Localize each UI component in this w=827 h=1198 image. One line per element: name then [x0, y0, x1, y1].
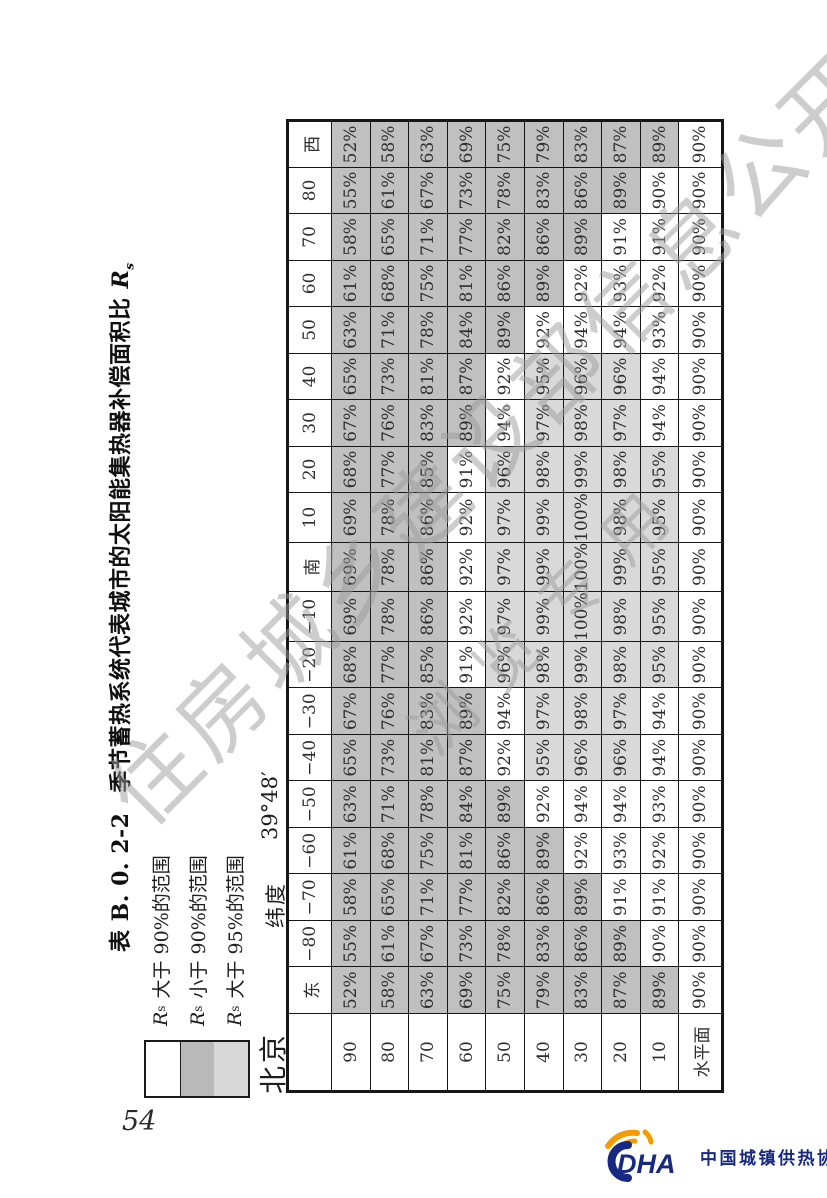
- ratio-cell: 95%: [524, 735, 563, 782]
- ratio-cell: 98%: [602, 446, 641, 493]
- ratio-cell: 63%: [332, 307, 371, 354]
- ratio-cell: 93%: [602, 260, 641, 307]
- ratio-cell: 95%: [640, 542, 679, 592]
- ratio-cell: 78%: [486, 921, 525, 968]
- table-row: 6069%73%77%81%84%87%89%91%92%92%92%91%89…: [447, 121, 486, 1092]
- ratio-cell: 86%: [563, 167, 602, 214]
- ratio-cell: 68%: [370, 260, 409, 307]
- ratio-cell: 77%: [370, 642, 409, 689]
- ratio-cell: 90%: [679, 353, 723, 400]
- ratio-cell: 76%: [370, 400, 409, 447]
- table-row: 5075%78%82%86%89%92%94%96%97%97%97%96%94…: [486, 121, 525, 1092]
- tilt-row-header: 20: [602, 1014, 641, 1092]
- ratio-cell: 71%: [370, 781, 409, 828]
- ratio-cell: 95%: [640, 642, 679, 689]
- ratio-cell: 79%: [524, 121, 563, 168]
- ratio-cell: 78%: [370, 592, 409, 642]
- ratio-cell: 73%: [447, 921, 486, 968]
- ratio-cell: 81%: [409, 353, 448, 400]
- ratio-cell: 90%: [640, 921, 679, 968]
- ratio-cell: 91%: [602, 874, 641, 921]
- ratio-cell: 92%: [640, 260, 679, 307]
- ratio-cell: 87%: [602, 121, 641, 168]
- table-corner-cell: [288, 1014, 332, 1092]
- ratio-cell: 81%: [447, 828, 486, 875]
- ratio-cell: 97%: [524, 400, 563, 447]
- ratio-cell: 77%: [370, 446, 409, 493]
- ratio-cell: 90%: [679, 688, 723, 735]
- ratio-cell: 87%: [447, 735, 486, 782]
- ratio-cell: 63%: [409, 967, 448, 1014]
- ratio-cell: 83%: [409, 400, 448, 447]
- tilt-row-header: 70: [409, 1014, 448, 1092]
- ratio-cell: 98%: [602, 493, 641, 543]
- ratio-cell: 71%: [370, 307, 409, 354]
- ratio-cell: 83%: [524, 167, 563, 214]
- ratio-cell: 86%: [409, 493, 448, 543]
- ratio-cell: 67%: [409, 921, 448, 968]
- ratio-cell: 77%: [447, 214, 486, 261]
- table-row: 水平面90%90%90%90%90%90%90%90%90%90%90%90%9…: [679, 121, 723, 1092]
- rs-symbol: Rs: [108, 262, 134, 288]
- ratio-cell: 90%: [679, 828, 723, 875]
- ratio-cell: 83%: [524, 921, 563, 968]
- ratio-cell: 94%: [640, 688, 679, 735]
- ratio-cell: 100%: [563, 592, 602, 642]
- ratio-cell: 55%: [332, 921, 371, 968]
- ratio-cell: 89%: [640, 967, 679, 1014]
- ratio-cell: 98%: [602, 592, 641, 642]
- ratio-cell: 67%: [332, 688, 371, 735]
- ratio-cell: 96%: [563, 735, 602, 782]
- ratio-cell: 75%: [486, 121, 525, 168]
- ratio-cell: 98%: [524, 642, 563, 689]
- legend-item-above-95: Rs 大于 95%的范围: [216, 855, 253, 1026]
- ratio-cell: 83%: [409, 688, 448, 735]
- azimuth-header-cell: −30: [288, 688, 332, 735]
- azimuth-header-cell: −60: [288, 828, 332, 875]
- azimuth-header-cell: 80: [288, 167, 332, 214]
- ratio-cell: 73%: [447, 167, 486, 214]
- table-row: 1089%90%91%92%93%94%94%95%95%95%95%95%94…: [640, 121, 679, 1092]
- ratio-cell: 78%: [370, 542, 409, 592]
- ratio-cell: 75%: [409, 828, 448, 875]
- ratio-cell: 92%: [524, 781, 563, 828]
- ratio-cell: 69%: [332, 592, 371, 642]
- ratio-cell: 78%: [486, 167, 525, 214]
- ratio-cell: 94%: [640, 353, 679, 400]
- tilt-row-header: 10: [640, 1014, 679, 1092]
- ratio-cell: 90%: [679, 400, 723, 447]
- azimuth-header-cell: 西: [288, 121, 332, 168]
- ratio-cell: 89%: [602, 167, 641, 214]
- ratio-cell: 75%: [486, 967, 525, 1014]
- ratio-cell: 95%: [524, 353, 563, 400]
- ratio-cell: 90%: [679, 307, 723, 354]
- ratio-cell: 99%: [563, 642, 602, 689]
- logo-name: 中国城镇供热协会: [700, 1144, 827, 1169]
- ratio-cell: 92%: [447, 592, 486, 642]
- azimuth-header-cell: 60: [288, 260, 332, 307]
- ratio-cell: 69%: [447, 967, 486, 1014]
- ratio-cell: 90%: [679, 874, 723, 921]
- azimuth-header-cell: 40: [288, 353, 332, 400]
- ratio-cell: 100%: [563, 542, 602, 592]
- ratio-cell: 82%: [486, 874, 525, 921]
- ratio-cell: 98%: [563, 688, 602, 735]
- ratio-cell: 69%: [332, 493, 371, 543]
- ratio-cell: 78%: [409, 307, 448, 354]
- ratio-cell: 95%: [640, 493, 679, 543]
- ratio-cell: 67%: [409, 167, 448, 214]
- ratio-cell: 61%: [370, 167, 409, 214]
- ratio-cell: 92%: [486, 353, 525, 400]
- ratio-cell: 98%: [602, 642, 641, 689]
- ratio-cell: 65%: [370, 874, 409, 921]
- table-number: 表 B. 0. 2-2: [108, 813, 134, 952]
- azimuth-header-cell: 南: [288, 542, 332, 592]
- ratio-cell: 89%: [447, 688, 486, 735]
- ratio-cell: 89%: [640, 121, 679, 168]
- ratio-cell: 90%: [679, 642, 723, 689]
- ratio-cell: 58%: [370, 967, 409, 1014]
- ratio-cell: 63%: [332, 781, 371, 828]
- ratio-cell: 94%: [486, 688, 525, 735]
- ratio-cell: 71%: [409, 874, 448, 921]
- ratio-cell: 76%: [370, 688, 409, 735]
- legend-swatch-box: [144, 1040, 250, 1098]
- table-row: 2087%89%91%93%94%96%97%98%98%99%98%98%97…: [602, 121, 641, 1092]
- ratio-cell: 89%: [447, 400, 486, 447]
- ratio-cell: 96%: [602, 353, 641, 400]
- ratio-cell: 87%: [602, 967, 641, 1014]
- ratio-cell: 90%: [679, 542, 723, 592]
- ratio-cell: 77%: [447, 874, 486, 921]
- ratio-cell: 89%: [563, 874, 602, 921]
- azimuth-header-cell: −70: [288, 874, 332, 921]
- ratio-cell: 78%: [409, 781, 448, 828]
- ratio-cell: 92%: [563, 828, 602, 875]
- ratio-cell: 99%: [602, 542, 641, 592]
- ratio-cell: 95%: [640, 446, 679, 493]
- ratio-cell: 97%: [486, 592, 525, 642]
- dha-logo-mark: DHA: [600, 1128, 686, 1184]
- ratio-cell: 89%: [486, 781, 525, 828]
- ratio-cell: 89%: [486, 307, 525, 354]
- azimuth-header-cell: 70: [288, 214, 332, 261]
- ratio-cell: 86%: [486, 260, 525, 307]
- ratio-cell: 52%: [332, 121, 371, 168]
- ratio-cell: 97%: [486, 542, 525, 592]
- ratio-cell: 91%: [640, 874, 679, 921]
- ratio-cell: 85%: [409, 446, 448, 493]
- ratio-cell: 71%: [409, 214, 448, 261]
- ratio-cell: 97%: [602, 688, 641, 735]
- azimuth-header-cell: 50: [288, 307, 332, 354]
- ratio-cell: 89%: [563, 214, 602, 261]
- ratio-cell: 61%: [370, 921, 409, 968]
- ratio-cell: 65%: [332, 353, 371, 400]
- ratio-cell: 94%: [563, 307, 602, 354]
- ratio-cell: 90%: [679, 167, 723, 214]
- tilt-row-header: 80: [370, 1014, 409, 1092]
- ratio-cell: 58%: [370, 121, 409, 168]
- azimuth-header-cell: −80: [288, 921, 332, 968]
- azimuth-header-cell: 10: [288, 493, 332, 543]
- ratio-cell: 86%: [409, 542, 448, 592]
- ratio-cell: 100%: [563, 493, 602, 543]
- ratio-cell: 90%: [679, 446, 723, 493]
- ratio-cell: 96%: [486, 642, 525, 689]
- ratio-cell: 99%: [524, 592, 563, 642]
- ratio-cell: 99%: [524, 542, 563, 592]
- tilt-row-header: 60: [447, 1014, 486, 1092]
- ratio-cell: 90%: [679, 592, 723, 642]
- azimuth-header-cell: −40: [288, 735, 332, 782]
- ratio-cell: 91%: [447, 642, 486, 689]
- azimuth-header-cell: −10: [288, 592, 332, 642]
- table-title: 表 B. 0. 2-2季节蓄热系统代表城市的太阳能集热器补偿面积比Rs: [103, 262, 136, 952]
- ratio-cell: 89%: [602, 921, 641, 968]
- ratio-cell: 58%: [332, 214, 371, 261]
- azimuth-header-cell: −20: [288, 642, 332, 689]
- ratio-cell: 86%: [409, 592, 448, 642]
- table-row: 4079%83%86%89%92%95%97%98%99%99%99%98%97…: [524, 121, 563, 1092]
- ratio-cell: 90%: [679, 493, 723, 543]
- ratio-cell: 94%: [602, 781, 641, 828]
- ratio-cell: 94%: [486, 400, 525, 447]
- ratio-cell: 69%: [332, 542, 371, 592]
- ratio-cell: 96%: [602, 735, 641, 782]
- ratio-cell: 90%: [679, 214, 723, 261]
- page: 表 B. 0. 2-2季节蓄热系统代表城市的太阳能集热器补偿面积比Rs Rs 大…: [0, 0, 827, 1198]
- azimuth-header-cell: 20: [288, 446, 332, 493]
- ratio-cell: 89%: [524, 260, 563, 307]
- legend-swatch-below-90: [181, 1042, 215, 1096]
- table-row: 3083%86%89%92%94%96%98%99%100%100%100%99…: [563, 121, 602, 1092]
- ratio-cell: 86%: [486, 828, 525, 875]
- logo-acronym: DHA: [617, 1149, 676, 1179]
- ratio-cell: 92%: [640, 828, 679, 875]
- ratio-cell: 73%: [370, 353, 409, 400]
- ratio-cell: 99%: [563, 446, 602, 493]
- tilt-row-header: 30: [563, 1014, 602, 1092]
- ratio-cell: 81%: [447, 260, 486, 307]
- ratio-cell: 86%: [524, 874, 563, 921]
- ratio-cell: 97%: [602, 400, 641, 447]
- tilt-row-header: 90: [332, 1014, 371, 1092]
- ratio-cell: 89%: [524, 828, 563, 875]
- table-row: 9052%55%58%61%63%65%67%68%69%69%69%68%67…: [332, 121, 371, 1092]
- ratio-cell: 99%: [524, 493, 563, 543]
- ratio-cell: 94%: [602, 307, 641, 354]
- ratio-cell: 63%: [409, 121, 448, 168]
- ratio-cell: 94%: [640, 735, 679, 782]
- ratio-cell: 91%: [602, 214, 641, 261]
- ratio-cell: 81%: [409, 735, 448, 782]
- ratio-cell: 90%: [679, 735, 723, 782]
- ratio-cell: 83%: [563, 121, 602, 168]
- ratio-cell: 94%: [640, 400, 679, 447]
- ratio-cell: 65%: [370, 214, 409, 261]
- ratio-cell: 65%: [332, 735, 371, 782]
- ratio-cell: 69%: [447, 121, 486, 168]
- legend: Rs 大于 90%的范围 Rs 小于 90%的范围 Rs 大于 95%的范围: [142, 768, 257, 1098]
- ratio-cell: 90%: [679, 260, 723, 307]
- legend-labels: Rs 大于 90%的范围 Rs 小于 90%的范围 Rs 大于 95%的范围: [142, 855, 253, 1026]
- ratio-cell: 84%: [447, 781, 486, 828]
- tilt-row-header: 50: [486, 1014, 525, 1092]
- ratio-cell: 68%: [370, 828, 409, 875]
- rotated-content: 表 B. 0. 2-2季节蓄热系统代表城市的太阳能集热器补偿面积比Rs Rs 大…: [0, 0, 827, 1198]
- azimuth-header-cell: 东: [288, 967, 332, 1014]
- ratio-cell: 61%: [332, 260, 371, 307]
- ratio-cell: 68%: [332, 446, 371, 493]
- ratio-cell: 87%: [447, 353, 486, 400]
- ratio-cell: 92%: [563, 260, 602, 307]
- tilt-row-header: 40: [524, 1014, 563, 1092]
- ratio-cell: 91%: [447, 446, 486, 493]
- ratio-cell: 90%: [679, 781, 723, 828]
- ratio-cell: 98%: [563, 400, 602, 447]
- ratio-cell: 61%: [332, 828, 371, 875]
- ratio-cell: 82%: [486, 214, 525, 261]
- azimuth-header-row: 东−80−70−60−50−40−30−20−10南10203040506070…: [288, 121, 332, 1092]
- ratio-cell: 55%: [332, 167, 371, 214]
- legend-swatch-above-95: [214, 1042, 248, 1096]
- ratio-cell: 84%: [447, 307, 486, 354]
- ratio-cell: 95%: [640, 592, 679, 642]
- table-row: 8058%61%65%68%71%73%76%77%78%78%78%77%76…: [370, 121, 409, 1092]
- ratio-cell: 86%: [524, 214, 563, 261]
- legend-swatch-above-90: [146, 1042, 181, 1096]
- ratio-cell: 73%: [370, 735, 409, 782]
- ratio-cell: 90%: [679, 121, 723, 168]
- ratio-cell: 96%: [563, 353, 602, 400]
- ratio-cell: 90%: [679, 967, 723, 1014]
- ratio-cell: 58%: [332, 874, 371, 921]
- ratio-cell: 96%: [486, 446, 525, 493]
- ratio-cell: 85%: [409, 642, 448, 689]
- ratio-cell: 98%: [524, 446, 563, 493]
- page-number: 54: [122, 1106, 156, 1137]
- ratio-cell: 93%: [640, 307, 679, 354]
- ratio-cell: 52%: [332, 967, 371, 1014]
- legend-item-below-90: Rs 小于 90%的范围: [179, 855, 216, 1026]
- ratio-cell: 94%: [563, 781, 602, 828]
- tilt-row-header: 水平面: [679, 1014, 723, 1092]
- ratio-cell: 90%: [640, 167, 679, 214]
- ratio-cell: 67%: [332, 400, 371, 447]
- ratio-cell: 97%: [524, 688, 563, 735]
- ratio-cell: 93%: [602, 828, 641, 875]
- table-title-text: 季节蓄热系统代表城市的太阳能集热器补偿面积比: [108, 298, 134, 793]
- ratio-cell: 92%: [486, 735, 525, 782]
- logo-orange-tick: [645, 1132, 651, 1142]
- ratio-cell: 78%: [370, 493, 409, 543]
- ratio-cell: 79%: [524, 967, 563, 1014]
- ratio-cell: 90%: [679, 921, 723, 968]
- legend-item-above-90: Rs 大于 90%的范围: [142, 855, 179, 1026]
- azimuth-header-cell: −50: [288, 781, 332, 828]
- association-logo: DHA 中国城镇供热协会: [600, 1128, 827, 1184]
- azimuth-header-cell: 30: [288, 400, 332, 447]
- table-row: 7063%67%71%75%78%81%83%85%86%86%86%85%83…: [409, 121, 448, 1092]
- ratio-cell: 83%: [563, 967, 602, 1014]
- ratio-cell: 92%: [524, 307, 563, 354]
- latitude-value: 39°48′: [258, 771, 282, 840]
- ratio-cell: 75%: [409, 260, 448, 307]
- ratio-cell: 92%: [447, 493, 486, 543]
- solar-collector-compensation-table: 东−80−70−60−50−40−30−20−10南10203040506070…: [286, 119, 724, 1093]
- ratio-cell: 92%: [447, 542, 486, 592]
- ratio-cell: 97%: [486, 493, 525, 543]
- ratio-cell: 93%: [640, 781, 679, 828]
- ratio-cell: 91%: [640, 214, 679, 261]
- ratio-cell: 86%: [563, 921, 602, 968]
- ratio-cell: 68%: [332, 642, 371, 689]
